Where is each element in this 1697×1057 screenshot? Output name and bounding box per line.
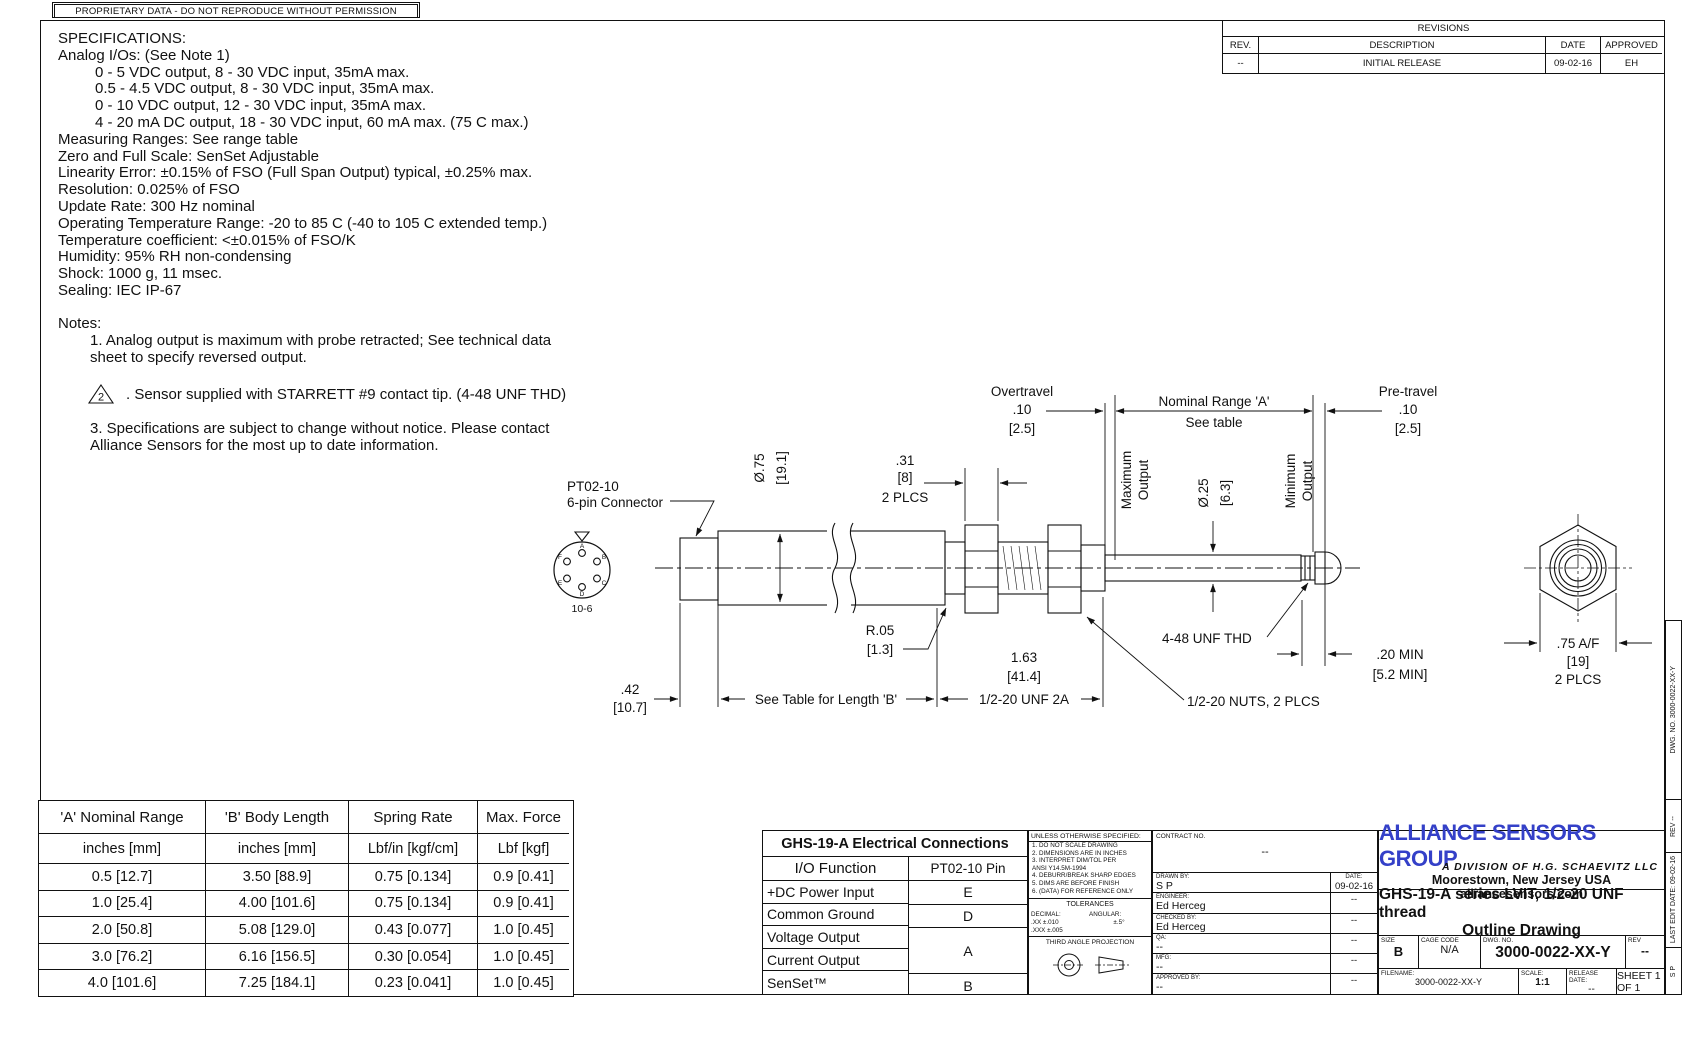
electrical-col-function: I/O Function [763, 857, 909, 880]
triangle-flag-icon: 2 [86, 382, 116, 406]
range-cell: 0.30 [0.054] [349, 944, 478, 971]
dim-hex-af-mm: [19] [1567, 654, 1590, 669]
specs-title: SPECIFICATIONS: [58, 31, 547, 48]
revisions-title: REVISIONS [1223, 21, 1664, 37]
third-angle-projection-icon [1047, 948, 1133, 982]
range-cell: 0.5 [12.7] [39, 864, 206, 891]
tb-note: 6. (DATA) FOR REFERENCE ONLY [1029, 888, 1151, 896]
range-cell: 3.0 [76.2] [39, 944, 206, 971]
electrical-connections-table: GHS-19-A Electrical Connections I/O Func… [762, 830, 1028, 995]
revisions-table: REVISIONS REV. DESCRIPTION DATE APPROVED… [1222, 20, 1665, 74]
dim-hex-af-plcs: 2 PLCS [1555, 672, 1602, 687]
cage-code-label: CAGE CODE [1419, 936, 1480, 944]
contract-no-label: CONTRACT NO. [1153, 831, 1377, 840]
connector-label-line2: 6-pin Connector [567, 495, 664, 510]
connector-key-icon [575, 532, 589, 541]
dimension-lines [654, 395, 1652, 707]
dim-length-b: See Table for Length 'B' [755, 692, 897, 707]
range-cell: 0.23 [0.041] [349, 970, 478, 996]
drawn-by-value: S P [1156, 881, 1330, 892]
tb-note: 2. DIMENSIONS ARE IN INCHES [1029, 850, 1151, 858]
label-minimum: Minimum [1283, 454, 1298, 509]
title-block-company: ALLIANCE SENSORS GROUP A DIVISION OF H.G… [1378, 830, 1665, 995]
label-maximum-output: Output [1136, 459, 1151, 500]
function-power: +DC Power Input [763, 881, 908, 904]
range-cell: 3.50 [88.9] [206, 864, 349, 891]
range-header: Spring Rate [349, 801, 478, 834]
mfg-value: -- [1156, 962, 1330, 973]
rev-value: -- [1626, 944, 1664, 958]
dim-rear: .42 [621, 682, 640, 697]
scale-label: SCALE: [1519, 969, 1566, 977]
qa-date: -- [1331, 935, 1377, 946]
unless-otherwise-label: UNLESS OTHERWISE SPECIFIED: [1029, 831, 1151, 842]
angular-label: ANGULAR: [1089, 911, 1149, 919]
function-voltage: Voltage Output [763, 926, 908, 949]
dim-pretravel-in: .10 [1399, 402, 1418, 417]
checked-by-value: Ed Herceg [1156, 922, 1330, 933]
outline-drawing: PT02-10 6-pin Connector 10-6 A B C D E F… [530, 375, 1670, 720]
range-cell: 1.0 [0.45] [478, 944, 569, 971]
note-2-flag: 2 [98, 392, 104, 404]
date-value: 09-02-16 [1331, 881, 1377, 892]
pin-d-label: D [580, 591, 585, 598]
spec-line: Shock: 1000 g, 11 msec. [58, 266, 547, 283]
note-3-line2: Alliance Sensors for the most up to date… [90, 437, 566, 454]
connector-view-label: 10-6 [571, 603, 592, 615]
electrical-title: GHS-19-A Electrical Connections [763, 831, 1027, 857]
note-1-line2: sheet to specify reversed output. [90, 349, 566, 366]
range-cell: 4.0 [101.6] [39, 970, 206, 996]
range-units: inches [mm] [206, 834, 349, 864]
range-cell: 7.25 [184.1] [206, 970, 349, 996]
mfg-date: -- [1331, 955, 1377, 966]
edge-strip: DWG. NO. 3000-0022-XX-Y REV -- LAST EDIT… [1665, 620, 1682, 995]
dim-163: 1.63 [1011, 650, 1037, 665]
dim-overtravel-in: .10 [1013, 402, 1032, 417]
spec-line: Linearity Error: ±0.15% of FSO (Full Spa… [58, 165, 547, 182]
spec-line: Zero and Full Scale: SenSet Adjustable [58, 149, 547, 166]
notes-block: Notes: 1. Analog output is maximum with … [58, 315, 566, 454]
range-cell: 4.00 [101.6] [206, 891, 349, 918]
range-cell: 1.0 [0.45] [478, 917, 569, 944]
label-tip-thread: 4-48 UNF THD [1162, 631, 1252, 646]
range-cell: 1.0 [0.45] [478, 970, 569, 996]
sensor-side-view [554, 523, 1360, 613]
page: { "banner": { "text": "PROPRIETARY DATA … [0, 0, 1697, 1057]
dwg-no-label: DWG. NO. [1481, 936, 1625, 944]
sheet-label: SHEET 1 OF 1 [1617, 970, 1664, 994]
pin-e-label: E [558, 580, 563, 587]
proprietary-banner: PROPRIETARY DATA - DO NOT REPRODUCE WITH… [52, 2, 420, 18]
specifications-block: SPECIFICATIONS: Analog I/Os: (See Note 1… [58, 31, 547, 300]
title-block-notes: UNLESS OTHERWISE SPECIFIED: 1. DO NOT SC… [1028, 830, 1152, 995]
dim-radius: R.05 [866, 623, 895, 638]
note-2: 2 . Sensor supplied with STARRETT #9 con… [86, 382, 566, 406]
dim-radius-mm: [1.3] [867, 642, 893, 657]
dim-hex-af: .75 A/F [1557, 636, 1600, 651]
revisions-col-rev: REV. [1223, 37, 1259, 54]
engineer-value: Ed Herceg [1156, 901, 1330, 912]
spec-line: Humidity: 95% RH non-condensing [58, 249, 547, 266]
cage-code-value: N/A [1419, 944, 1480, 956]
label-nuts: 1/2-20 NUTS, 2 PLCS [1187, 694, 1320, 709]
dim-overtravel-mm: [2.5] [1009, 421, 1035, 436]
qa-value: -- [1156, 942, 1330, 953]
spec-line: Sealing: IEC IP-67 [58, 283, 547, 300]
label-minimum-output: Output [1300, 460, 1315, 501]
tb-note: 5. DIMS ARE BEFORE FINISH [1029, 880, 1151, 888]
hex-nut-1 [965, 525, 998, 613]
revision-date: 09-02-16 [1546, 54, 1601, 73]
rear-connector-shell [680, 538, 718, 600]
range-header: Max. Force [478, 801, 569, 834]
checked-date: -- [1331, 915, 1377, 926]
scale-value: 1:1 [1519, 977, 1566, 988]
dim-body-dia: Ø.75 [752, 453, 767, 482]
drawn-by-label: DRAWN BY: [1156, 873, 1330, 881]
qa-row: QA:-- -- [1153, 934, 1377, 954]
dim-body-dia-mm: [19.1] [774, 451, 789, 485]
revision-description: INITIAL RELEASE [1259, 54, 1546, 73]
hex-nut-2 [1048, 525, 1081, 613]
range-cell: 2.0 [50.8] [39, 917, 206, 944]
release-date-value: -- [1567, 984, 1616, 995]
pin-senset: B [909, 974, 1027, 997]
dim-163-mm: [41.4] [1007, 669, 1041, 684]
dim-overtravel: Overtravel [991, 384, 1053, 399]
spec-io-option: 4 - 20 mA DC output, 18 - 30 VDC input, … [95, 115, 547, 132]
drawn-by-row: DRAWN BY:S P DATE:09-02-16 [1153, 873, 1377, 893]
electrical-functions: +DC Power Input Common Ground Voltage Ou… [763, 881, 909, 994]
electrical-col-pin: PT02-10 Pin [909, 857, 1027, 880]
spec-io-option: 0.5 - 4.5 VDC output, 8 - 30 VDC input, … [95, 81, 547, 98]
range-units: Lbf/in [kgf/cm] [349, 834, 478, 864]
dim-nut-thk: .31 [896, 453, 915, 468]
drawing-title: GHS-19-A series LVIT, 1/2-20 UNF thread … [1379, 890, 1664, 936]
spec-line: Temperature coefficient: <±0.015% of FSO… [58, 233, 547, 250]
range-cell: 0.75 [0.134] [349, 891, 478, 918]
note-1-line1: 1. Analog output is maximum with probe r… [90, 332, 566, 349]
angular-value: ±.5° [1089, 919, 1149, 927]
revision-approved: EH [1601, 54, 1662, 73]
dim-rod-dia: Ø.25 [1196, 478, 1211, 507]
dim-nut-thk-mm: [8] [897, 470, 912, 485]
revision-rev: -- [1223, 54, 1259, 73]
electrical-pins: E D A B [909, 881, 1027, 994]
range-cell: 0.43 [0.077] [349, 917, 478, 944]
spec-line: Resolution: 0.025% of FSO [58, 182, 547, 199]
range-units: inches [mm] [39, 834, 206, 864]
rev-label: REV [1626, 936, 1664, 944]
label-thread: 1/2-20 UNF 2A [979, 692, 1069, 707]
range-cell: 0.9 [0.41] [478, 891, 569, 918]
pin-f-label: F [558, 554, 562, 561]
engineer-date: -- [1331, 894, 1377, 905]
dim-pretravel-mm: [2.5] [1395, 421, 1421, 436]
size-value: B [1379, 944, 1418, 959]
dim-rear-mm: [10.7] [613, 700, 647, 715]
dim-20min: .20 MIN [1376, 647, 1423, 662]
dimension-labels: PT02-10 6-pin Connector 10-6 A B C D E F… [558, 384, 1601, 715]
spec-io-option: 0 - 10 VDC output, 12 - 30 VDC input, 35… [95, 98, 547, 115]
checked-by-row: CHECKED BY:Ed Herceg -- [1153, 914, 1377, 934]
range-cell: 6.16 [156.5] [206, 944, 349, 971]
dwg-no-value: 3000-0022-XX-Y [1481, 944, 1625, 962]
approved-by-label: APPROVED BY: [1156, 974, 1330, 982]
decimal-xx: .XX ±.010 [1031, 919, 1089, 927]
electrical-header-row: I/O Function PT02-10 Pin [763, 857, 1027, 881]
function-current: Current Output [763, 949, 908, 972]
filename-label: FILENAME: [1379, 969, 1518, 977]
tb-note: 1. DO NOT SCALE DRAWING [1029, 842, 1151, 850]
qa-label: QA: [1156, 934, 1330, 942]
function-senset: SenSet™ [763, 971, 908, 994]
connector-label-line1: PT02-10 [567, 479, 619, 494]
note-3-line1: 3. Specifications are subject to change … [90, 420, 566, 437]
label-maximum: Maximum [1119, 451, 1134, 510]
tb-note: 3. INTERPRET DIM/TOL PER [1029, 857, 1151, 865]
tolerances-values: DECIMAL: .XX ±.010 .XXX ±.005 ANGULAR: ±… [1029, 910, 1151, 936]
edge-by: S P [1670, 966, 1677, 977]
company-logo: ALLIANCE SENSORS GROUP [1379, 831, 1664, 861]
pin-a-label: A [580, 543, 585, 550]
revisions-row: -- INITIAL RELEASE 09-02-16 EH [1223, 54, 1664, 73]
edge-last-edit: LAST EDIT DATE: 09-02-16 [1670, 856, 1677, 943]
spec-line: Operating Temperature Range: -20 to 85 C… [58, 216, 547, 233]
tb-note: 4. DEBURR/BREAK SHARP EDGES [1029, 872, 1151, 880]
contract-no-value: -- [1153, 846, 1377, 858]
pin-ground: D [909, 905, 1027, 929]
revisions-col-description: DESCRIPTION [1259, 37, 1546, 54]
revisions-col-date: DATE [1546, 37, 1601, 54]
approved-by-row: APPROVED BY:-- -- [1153, 974, 1377, 994]
mfg-row: MFG:-- -- [1153, 954, 1377, 974]
pin-power: E [909, 881, 1027, 905]
drawing-title-line1: GHS-19-A series LVIT, 1/2-20 UNF thread [1379, 886, 1664, 922]
approved-by-value: -- [1156, 982, 1330, 993]
range-header: 'B' Body Length [206, 801, 349, 834]
approved-date: -- [1331, 975, 1377, 986]
revisions-col-approved: APPROVED [1601, 37, 1662, 54]
range-cell: 0.75 [0.134] [349, 864, 478, 891]
projection-label: THIRD ANGLE PROJECTION [1029, 936, 1151, 946]
dim-pretravel: Pre-travel [1379, 384, 1438, 399]
specs-subtitle: Analog I/Os: (See Note 1) [58, 48, 547, 65]
connector-front-view [554, 532, 610, 598]
dim-nut-thk-plcs: 2 PLCS [882, 490, 929, 505]
pin-c-label: C [602, 580, 607, 587]
revisions-header-row: REV. DESCRIPTION DATE APPROVED [1223, 37, 1664, 54]
dim-rod-dia-mm: [6.3] [1218, 480, 1233, 506]
title-block-signatures: CONTRACT NO. -- DRAWN BY:S P DATE:09-02-… [1152, 830, 1378, 995]
dim-20min-mm: [5.2 MIN] [1373, 667, 1428, 682]
edge-rev: REV -- [1670, 816, 1677, 837]
notes-title: Notes: [58, 315, 566, 332]
release-date-label: RELEASE DATE: [1567, 969, 1616, 984]
tolerances-title: TOLERANCES [1029, 898, 1151, 910]
pin-b-label: B [602, 554, 606, 561]
dim-nominal-see-table: See table [1185, 415, 1242, 430]
spec-line: Measuring Ranges: See range table [58, 132, 547, 149]
engineer-row: ENGINEER:Ed Herceg -- [1153, 893, 1377, 913]
range-cell: 5.08 [129.0] [206, 917, 349, 944]
mfg-label: MFG: [1156, 954, 1330, 962]
proprietary-banner-text: PROPRIETARY DATA - DO NOT REPRODUCE WITH… [54, 4, 418, 18]
range-units: Lbf [kgf] [478, 834, 569, 864]
decimal-label: DECIMAL: [1031, 911, 1089, 919]
spec-io-option: 0 - 5 VDC output, 8 - 30 VDC input, 35mA… [95, 65, 547, 82]
size-label: SIZE [1379, 936, 1418, 944]
function-ground: Common Ground [763, 904, 908, 927]
filename-value: 3000-0022-XX-Y [1379, 977, 1518, 987]
range-cell: 1.0 [25.4] [39, 891, 206, 918]
edge-dwg-no: DWG. NO. 3000-0022-XX-Y [1670, 666, 1677, 754]
dim-nominal-range: Nominal Range 'A' [1159, 394, 1270, 409]
pin-voltage-current: A [909, 928, 1027, 974]
range-header: 'A' Nominal Range [39, 801, 206, 834]
spec-line: Update Rate: 300 Hz nominal [58, 199, 547, 216]
tb-note: ANSI Y14.5M-1994 [1029, 865, 1151, 873]
note-2-text: . Sensor supplied with STARRETT #9 conta… [126, 386, 566, 403]
range-table: 'A' Nominal Range 'B' Body Length Spring… [38, 800, 574, 997]
decimal-xxx: .XXX ±.005 [1031, 927, 1089, 935]
range-cell: 0.9 [0.41] [478, 864, 569, 891]
date-label: DATE: [1331, 873, 1377, 881]
